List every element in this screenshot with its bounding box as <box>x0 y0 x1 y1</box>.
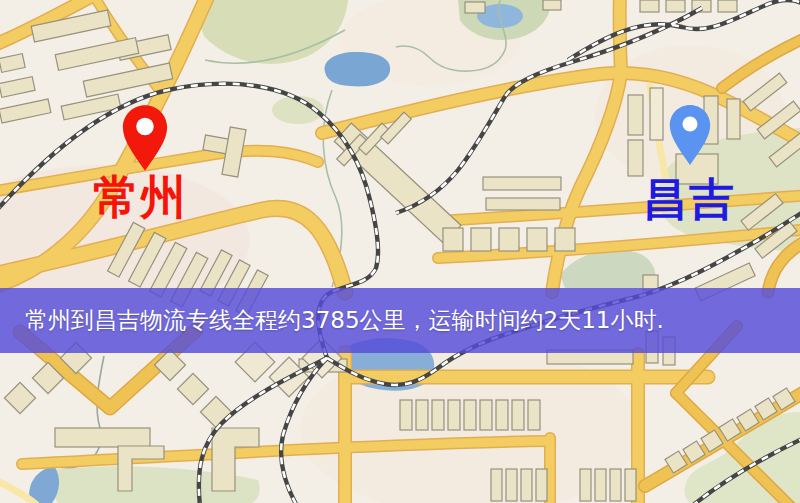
map-container: 常州 昌吉 常州到昌吉物流专线全程约3785公里，运输时间约2天11小时. <box>0 0 800 503</box>
route-info-banner: 常州到昌吉物流专线全程约3785公里，运输时间约2天11小时. <box>0 288 800 353</box>
route-info-text: 常州到昌吉物流专线全程约3785公里，运输时间约2天11小时. <box>0 305 664 336</box>
destination-city-label: 昌吉 <box>643 177 735 222</box>
lake <box>325 52 391 86</box>
blue-location-pin-icon <box>669 104 711 166</box>
map-canvas <box>0 0 800 503</box>
origin-city-label: 常州 <box>93 174 187 220</box>
red-location-pin-icon <box>122 104 168 172</box>
pin-body <box>670 105 710 165</box>
pin-body <box>123 105 167 171</box>
pin-hole <box>136 118 154 136</box>
pin-hole <box>683 117 698 132</box>
